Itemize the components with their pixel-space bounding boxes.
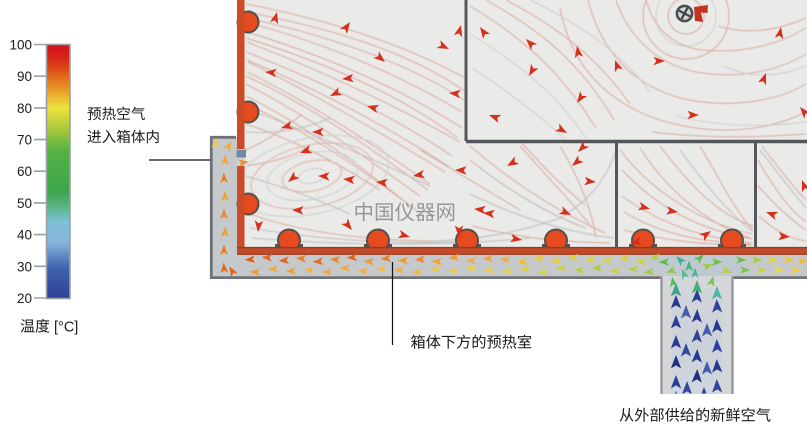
svg-text:60: 60 (17, 164, 32, 179)
svg-text:90: 90 (17, 69, 32, 84)
svg-text:70: 70 (17, 133, 32, 148)
svg-text:30: 30 (17, 259, 32, 274)
svg-text:80: 80 (17, 101, 32, 116)
svg-text:100: 100 (9, 38, 32, 53)
svg-text:[°C]: [°C] (54, 320, 78, 336)
svg-text:50: 50 (17, 196, 32, 211)
svg-text:40: 40 (17, 228, 32, 243)
svg-text:20: 20 (17, 291, 32, 306)
